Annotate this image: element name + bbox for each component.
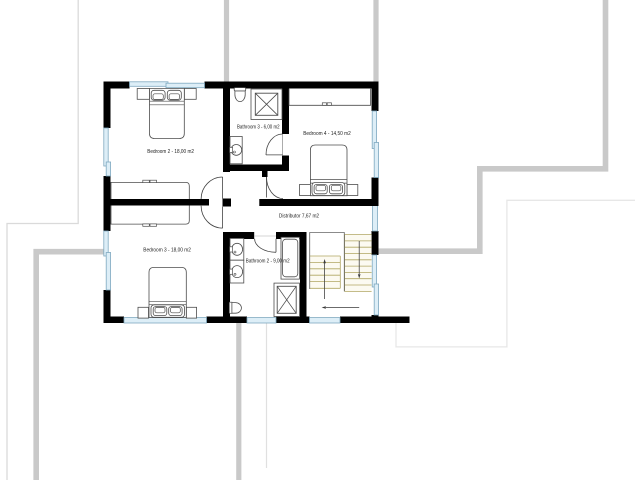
svg-text:Bathroom 3 - 6,00 m2: Bathroom 3 - 6,00 m2 — [237, 124, 280, 130]
svg-text:Distributor 7,67 m2: Distributor 7,67 m2 — [279, 214, 319, 220]
svg-text:Bedroom 2 - 18,00 m2: Bedroom 2 - 18,00 m2 — [147, 149, 194, 155]
svg-text:Bathroom 2 - 9,00 m2: Bathroom 2 - 9,00 m2 — [246, 258, 290, 264]
svg-text:Bedroom 3 - 18,00 m2: Bedroom 3 - 18,00 m2 — [143, 248, 191, 254]
svg-text:Bedroom 4 - 14,50 m2: Bedroom 4 - 14,50 m2 — [303, 131, 351, 137]
